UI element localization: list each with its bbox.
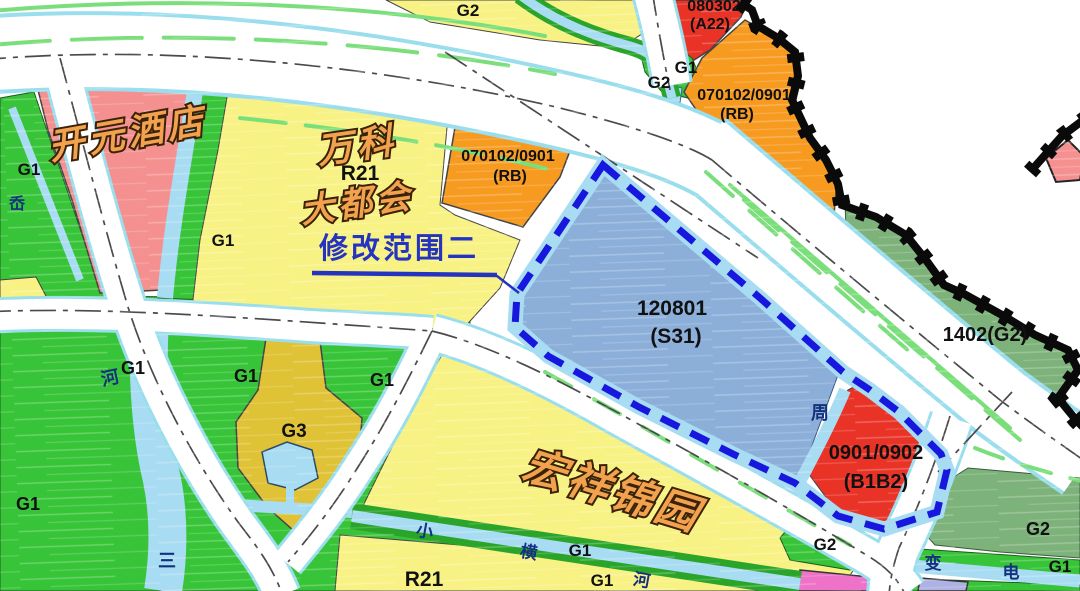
label-g1-west: G1 — [18, 160, 41, 179]
label-use-rb-ne: (RB) — [720, 106, 754, 123]
label-r21-vanke: R21 — [341, 162, 380, 185]
label-g1-mid: G1 — [121, 358, 145, 378]
label-g2-se: G2 — [1026, 519, 1050, 539]
label-mod-scope: 修改范围二 — [318, 232, 479, 265]
label-ao: 岙 — [9, 194, 26, 213]
label-code-b1b2: 0901/0902 — [829, 442, 924, 464]
label-g2-roadE: G2 — [814, 535, 837, 554]
label-g1-xiaoheng1: G1 — [569, 541, 592, 560]
label-g1-sliver: G1 — [675, 58, 698, 77]
scan-streaks-overlay — [0, 0, 1080, 591]
label-use-rb-center: (RB) — [493, 168, 527, 185]
label-g1-swcorner: G1 — [16, 494, 40, 514]
label-zhou: 周 — [811, 403, 829, 423]
label-code-s31: 120801 — [637, 297, 707, 320]
label-heng: 横 — [519, 541, 539, 564]
label-xiao: 小 — [415, 521, 435, 543]
label-g1-bank: G1 — [212, 231, 235, 250]
label-g1-xiaoheng2: G1 — [591, 571, 614, 590]
label-san: 三 — [158, 551, 176, 571]
label-g1-g3west: G1 — [234, 366, 258, 386]
label-use-s31: (S31) — [650, 325, 701, 348]
label-code-a22: 080302 — [687, 0, 740, 15]
label-he-xiaoheng: 河 — [632, 570, 652, 591]
label-bian: 变 — [925, 553, 942, 573]
planning-map: 开元酒店 万科 大都会 宏祥锦园 修改范围二 R21 R21 070102/09… — [0, 0, 1080, 591]
label-use-b1b2: (B1B2) — [844, 471, 908, 493]
label-code-rb-center: 070102/0901 — [461, 148, 555, 165]
label-g2-top: G2 — [457, 1, 480, 20]
label-dian: 电 — [1003, 562, 1020, 582]
label-g1-g3east: G1 — [370, 370, 394, 390]
label-code-1402: 1402(G2) — [943, 324, 1028, 346]
label-g2-sliver: G2 — [648, 73, 671, 92]
label-code-rb-ne: 070102/0901 — [697, 87, 791, 104]
label-g3: G3 — [281, 421, 306, 442]
label-r21-south: R21 — [405, 568, 444, 591]
label-g1-se: G1 — [1049, 557, 1072, 576]
label-use-a22: (A22) — [690, 16, 730, 33]
